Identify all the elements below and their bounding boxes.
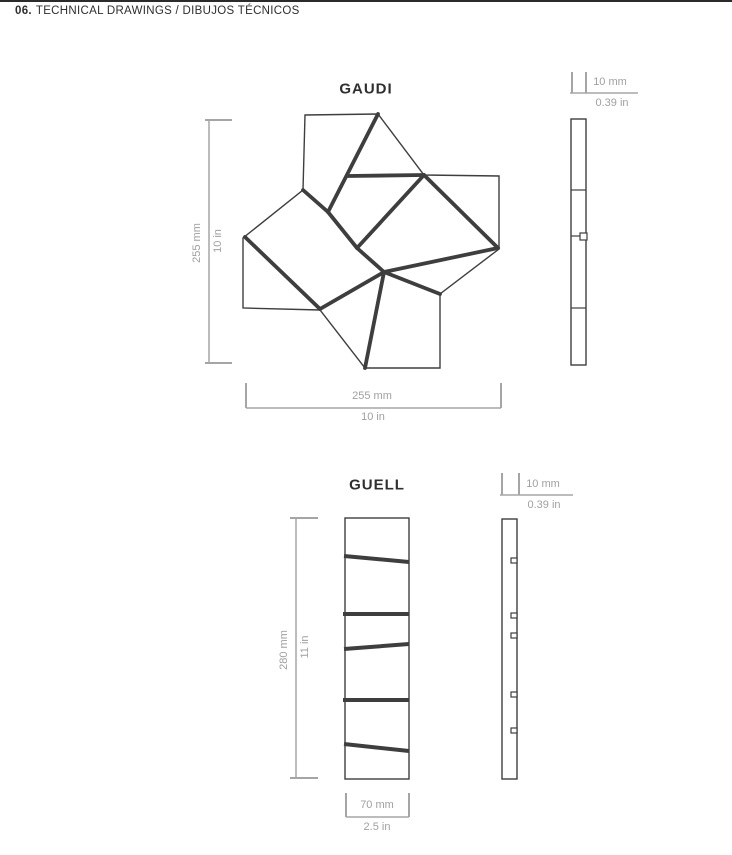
gaudi-thickness-mm-label: 10 mm bbox=[593, 76, 627, 88]
gaudi-height-mm-label: 255 mm bbox=[191, 223, 203, 263]
guell-width-mm-label: 70 mm bbox=[360, 799, 394, 811]
technical-drawings-canvas bbox=[0, 0, 732, 855]
gaudi-width-mm-label: 255 mm bbox=[352, 390, 392, 402]
guell-thickness-in-label: 0.39 in bbox=[527, 499, 560, 511]
gaudi-title: GAUDI bbox=[339, 81, 392, 98]
guell-thickness-mm-label: 10 mm bbox=[526, 478, 560, 490]
guell-height-mm-label: 280 mm bbox=[278, 630, 290, 670]
gaudi-thickness-in-label: 0.39 in bbox=[595, 97, 628, 109]
gaudi-height-in-label: 10 in bbox=[212, 229, 224, 253]
guell-height-in-label: 11 in bbox=[299, 635, 311, 658]
guell-width-in-label: 2.5 in bbox=[364, 821, 391, 833]
gaudi-width-in-label: 10 in bbox=[361, 411, 385, 423]
guell-title: GUELL bbox=[349, 477, 405, 494]
